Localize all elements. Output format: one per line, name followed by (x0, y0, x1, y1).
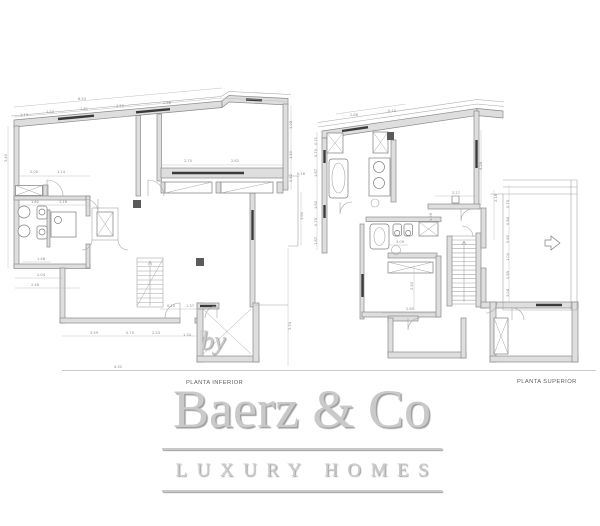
plan-planta-superior: 2.860.100.710.701.871.600.751.874.262.27… (314, 100, 578, 363)
dimension-label: 3.59 (90, 331, 99, 335)
dimension-label: 1.81 (80, 107, 88, 111)
floorplan-page: 8.531.131.501.811.502.863.402.001.141.82… (0, 0, 600, 526)
sink-icon (374, 178, 385, 189)
dimension-label: 2.70 (184, 159, 193, 163)
dimension-label: 1.50 (289, 150, 293, 159)
dimension-label: 1.13 (20, 113, 28, 117)
walls-right (318, 100, 578, 363)
dimension-label: 0.16 (297, 172, 306, 176)
dimension-label: 0.71 (314, 137, 318, 145)
dimension-label: 0.75 (314, 218, 318, 226)
dimension-label: 3.74 (288, 321, 292, 330)
dimension-label: 0.52 (289, 174, 293, 182)
columns-left (133, 200, 204, 266)
dimension-label: 1.37 (186, 304, 194, 308)
wardrobe-boxes-left (16, 182, 274, 196)
dimension-label: 0.85 (506, 271, 510, 279)
plan-label-superior: PLANTA SUPERIOR (517, 379, 577, 385)
dimension-label: 2.00 (30, 170, 39, 174)
stairs-icon (137, 258, 163, 307)
dimension-label: 2.86 (163, 101, 172, 105)
dimension-label: 2.48 (31, 283, 40, 287)
dimension-label: 3.04 (506, 288, 510, 297)
dimension-label: 0.70 (126, 331, 135, 335)
dimension-label: 2.27 (452, 191, 460, 195)
dimension-label: 0.70 (314, 148, 318, 157)
terrace-right (490, 180, 577, 310)
direction-arrow-icon (545, 236, 560, 250)
logo-brand-text: Baerz & Co (152, 376, 452, 444)
dimension-label: 1.60 (314, 200, 318, 209)
dimension-label: 1.50 (116, 104, 125, 108)
logo-divider-top (162, 448, 442, 450)
stairs-icon (452, 236, 476, 304)
dimension-label: 1.14 (57, 170, 66, 174)
dimension-label: 0.84 (506, 216, 510, 225)
dimension-label: 4.26 (479, 161, 483, 170)
dimension-label: 0.20 (167, 304, 176, 308)
dimension-label: 1.18 (59, 200, 68, 204)
dimension-label: 0.75 (506, 200, 510, 208)
dimension-label: 1.87 (314, 169, 318, 177)
sink-icon (374, 162, 385, 173)
dimension-label: 1.34 (183, 333, 192, 337)
dimension-label: 1.06 (429, 212, 433, 221)
doors-left (47, 180, 217, 318)
logo-tagline: LUXURY HOMES (152, 460, 452, 482)
dimension-label: 1.48 (37, 257, 46, 261)
dimension-label: 1.87 (314, 237, 318, 245)
dimension-label: 2.18 (494, 193, 498, 202)
dimension-label: 2.60 (406, 307, 415, 311)
dimension-label: 2.86 (350, 113, 359, 117)
dimension-label: 3.09 (396, 240, 405, 244)
dimension-label: 0.80 (506, 234, 510, 243)
dimension-label: 2.50 (410, 281, 414, 290)
dimension-label: 4.32 (114, 365, 122, 369)
dimension-label: 2.04 (37, 273, 46, 277)
dimension-label: 3.40 (4, 153, 8, 162)
brand-logo: Baerz & Co LUXURY HOMES (152, 376, 452, 492)
plan-planta-inferior: 8.531.131.501.811.502.863.402.001.141.82… (4, 88, 306, 369)
columns-right (387, 132, 459, 203)
dimension-label: 2.23 (152, 331, 160, 335)
dimension-label: 2.82 (231, 159, 239, 163)
sink-icon (18, 225, 30, 237)
dimension-label: 0.10 (388, 109, 397, 113)
dimension-label: 1.50 (46, 110, 55, 114)
shower-icon (51, 212, 76, 237)
by-watermark: by (201, 326, 226, 356)
sink-icon (18, 206, 30, 218)
dimension-label: 3.60 (300, 211, 304, 220)
dimension-label: 1.82 (31, 200, 39, 204)
dimension-label: 1.08 (289, 120, 293, 129)
dimension-label: 8.53 (78, 97, 86, 101)
logo-divider-bottom (162, 490, 442, 492)
dimension-label: 1.00 (506, 252, 510, 261)
